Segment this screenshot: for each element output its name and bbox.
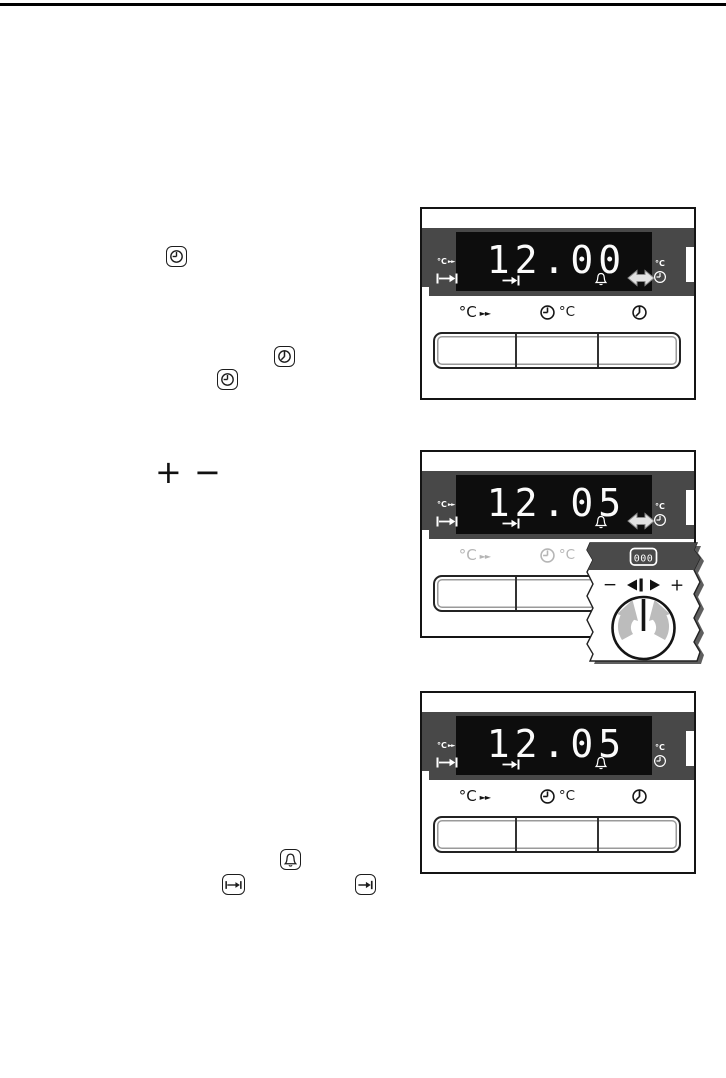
fast-arrows-label: ►► (448, 743, 454, 749)
button-labels-row: °C ►► °C (433, 787, 681, 805)
duration-indicator-icon (436, 756, 458, 769)
fast-heatup-indicator: °C ►► (437, 257, 454, 266)
manual-page: + − 12.00 °C ►► (0, 0, 726, 1078)
deg-c-indicator: °C (655, 743, 665, 752)
fast-arrows-label: ►► (480, 793, 490, 802)
display-symbol: 000 (634, 554, 654, 565)
timer-label (598, 787, 681, 805)
deg-c-label: °C (459, 787, 477, 805)
end-time-indicator-icon (502, 517, 520, 530)
bell-indicator-icon (594, 271, 608, 287)
function-button-row (433, 816, 681, 853)
rotary-knob-inset: 000 − + (580, 540, 707, 665)
function-button-row (433, 332, 681, 369)
plus-symbol: + (155, 457, 182, 487)
clock-temp-button (515, 818, 597, 851)
timer-button (597, 334, 679, 367)
clock-icon (539, 304, 556, 321)
button-labels-row: °C ►► °C (433, 303, 681, 321)
clock-key-icon (217, 369, 238, 390)
bell-icon (283, 852, 298, 868)
clock-icon (169, 249, 184, 264)
oven-display: 12.05 (456, 716, 652, 775)
flashing-arrows-icon (627, 512, 655, 530)
duration-indicator-icon (436, 515, 458, 528)
deg-c-indicator: °C (655, 259, 665, 268)
page-top-rule (0, 3, 726, 6)
clock-temp-label: °C (516, 787, 599, 805)
fascia-notch (422, 287, 429, 315)
end-time-key-icon (355, 874, 376, 895)
fast-heatup-indicator: °C ►► (437, 741, 454, 750)
clock-indicator-icon (653, 513, 667, 527)
clock-temp-label: °C (516, 303, 599, 321)
deg-c-label: °C (559, 547, 575, 563)
deg-c-label: °C (459, 546, 477, 564)
bell-indicator-icon (594, 755, 608, 771)
fascia-notch (422, 530, 429, 558)
fast-heatup-indicator: °C ►► (437, 500, 454, 509)
end-time-indicator-icon (502, 758, 520, 771)
clock-indicator-icon (653, 270, 667, 284)
deg-c-label: °C (459, 303, 477, 321)
deg-c-label: °C (559, 788, 575, 804)
bell-key-icon (280, 849, 301, 870)
fast-arrows-label: ►► (480, 309, 490, 318)
control-panel-illustration-3: 12.05 °C ►► °C °C (420, 691, 696, 874)
fast-heatup-label: °C ►► (433, 303, 516, 321)
knob-inset-graphic: 000 − + (580, 540, 707, 665)
fast-heatup-button (435, 818, 515, 851)
clock-icon (539, 788, 556, 805)
fascia-notch (686, 247, 694, 282)
oven-display: 12.00 (456, 232, 652, 291)
timer-key-icon (274, 346, 295, 367)
end-time-indicator-icon (502, 274, 520, 287)
timer-label (598, 303, 681, 321)
control-panel-illustration-1: 12.00 °C ►► °C (420, 207, 696, 400)
end-time-icon (358, 879, 373, 891)
duration-key-icon (222, 874, 245, 895)
deg-c-label: °C (559, 304, 575, 320)
timer-icon (631, 788, 648, 805)
fast-heatup-button (435, 334, 515, 367)
fast-arrows-label: ►► (448, 502, 454, 508)
deg-c-indicator: °C (655, 502, 665, 511)
bell-indicator-icon (594, 514, 608, 530)
timer-icon (631, 304, 648, 321)
timer-button (597, 818, 679, 851)
clock-key-icon (166, 246, 187, 267)
flashing-arrows-icon (627, 269, 655, 287)
fascia-notch (686, 731, 694, 766)
fast-arrows-label: ►► (448, 259, 454, 265)
fascia-notch (422, 771, 429, 799)
clock-temp-button (515, 334, 597, 367)
clock-indicator-icon (653, 754, 667, 768)
fast-arrows-label: ►► (480, 552, 490, 561)
clock-icon (539, 547, 556, 564)
minus-symbol: − (194, 457, 221, 487)
deg-c-label: °C (437, 741, 447, 750)
knob-plus-label: + (670, 576, 684, 596)
oven-display: 12.05 (456, 475, 652, 534)
fast-heatup-button (435, 577, 515, 610)
clock-icon (220, 372, 235, 387)
duration-indicator-icon (436, 272, 458, 285)
deg-c-label: °C (437, 500, 447, 509)
fascia-notch (686, 490, 694, 525)
deg-c-label: °C (437, 257, 447, 266)
duration-icon (225, 879, 242, 891)
fast-heatup-label: °C ►► (433, 546, 516, 564)
timer-icon (277, 349, 292, 364)
knob-minus-label: − (603, 575, 617, 595)
fast-heatup-label: °C ►► (433, 787, 516, 805)
